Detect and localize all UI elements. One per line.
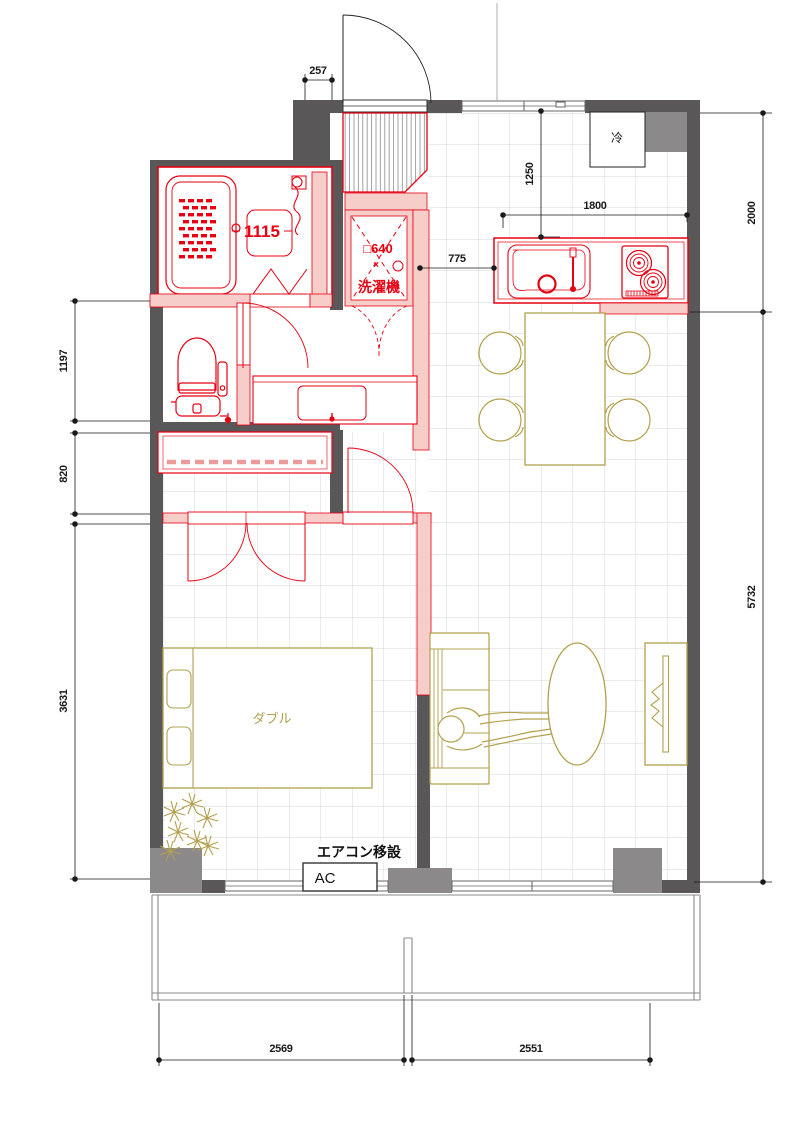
top-window xyxy=(462,101,585,111)
tv-board xyxy=(645,643,687,765)
right-wall xyxy=(687,113,700,893)
toilet-wall-pink xyxy=(237,365,250,425)
bath-sill-right xyxy=(310,294,332,307)
fridge-niche-wall xyxy=(645,112,687,152)
ac-note-label: エアコン移設 xyxy=(317,844,402,860)
bedroom-living-wall xyxy=(417,695,430,880)
balcony-divider xyxy=(404,938,412,993)
bedroom-living-wall-pink xyxy=(417,513,431,695)
genkan-step-area xyxy=(343,113,427,192)
toilet xyxy=(171,338,231,423)
washer-label: 洗濯機 xyxy=(358,279,400,295)
nook-floor xyxy=(343,432,417,473)
floor-plan: □640 × 洗濯機 1115 xyxy=(0,0,810,1126)
laundry-space: □640 × 洗濯機 xyxy=(345,210,413,356)
bedroom-door-frame xyxy=(343,512,413,524)
dimension-label: 2000 xyxy=(746,201,758,224)
door-swing-arc xyxy=(343,15,431,103)
bed-label: ダブル xyxy=(252,711,291,726)
dimension-label: 2551 xyxy=(519,1043,542,1055)
dimension-label: 775 xyxy=(448,253,466,265)
bath-wall-pink xyxy=(312,172,327,296)
toilet-control-panel xyxy=(218,362,227,396)
ac-label: AC xyxy=(315,870,336,887)
dimension-label: 1250 xyxy=(524,162,536,185)
entry-genkan xyxy=(343,113,427,210)
unit-bath-size-label: 1115 xyxy=(244,222,280,241)
balcony xyxy=(152,895,700,1000)
dimension-label: 1800 xyxy=(583,200,606,212)
double-bed: ダブル xyxy=(163,648,372,788)
closet xyxy=(158,432,332,473)
top-right-wall xyxy=(585,100,700,113)
bathroom: 1115 xyxy=(150,167,332,307)
refrigerator-label: 冷 xyxy=(611,131,623,145)
bath-sill-left xyxy=(150,294,250,307)
entry-left-wall xyxy=(293,100,344,113)
entrance-door xyxy=(343,3,497,112)
bottom-center-column xyxy=(388,868,452,893)
balcony-railing xyxy=(152,895,700,1000)
dimension-label: 5732 xyxy=(746,585,758,608)
top-wall-segment xyxy=(427,100,462,113)
dimension-label: 820 xyxy=(58,465,70,483)
dimension-label: 2569 xyxy=(269,1043,292,1055)
dining-table xyxy=(525,313,605,465)
bottom-right-column xyxy=(613,848,662,893)
closet-door-frame xyxy=(188,512,305,524)
toilet-bowl xyxy=(178,338,216,390)
vanity-counter xyxy=(253,376,417,424)
folding-door-arcs xyxy=(352,306,407,356)
coffee-table xyxy=(548,643,606,765)
bottom-left-column xyxy=(150,848,202,893)
washer-times-label: × xyxy=(373,260,379,271)
dimension-label: 3631 xyxy=(58,689,70,712)
dimension-label: 257 xyxy=(309,65,327,77)
entry-step xyxy=(345,193,427,210)
bottom-window-right xyxy=(452,881,613,891)
kitchen-toe-kick xyxy=(600,303,688,314)
bathtub-texture xyxy=(179,199,216,258)
washer-tap xyxy=(393,261,403,271)
toilet-door-swing-arc xyxy=(243,303,308,368)
entry-corner-block xyxy=(293,113,330,167)
dimension-label: 1197 xyxy=(58,349,70,372)
washer-size-label: □640 xyxy=(363,241,393,256)
